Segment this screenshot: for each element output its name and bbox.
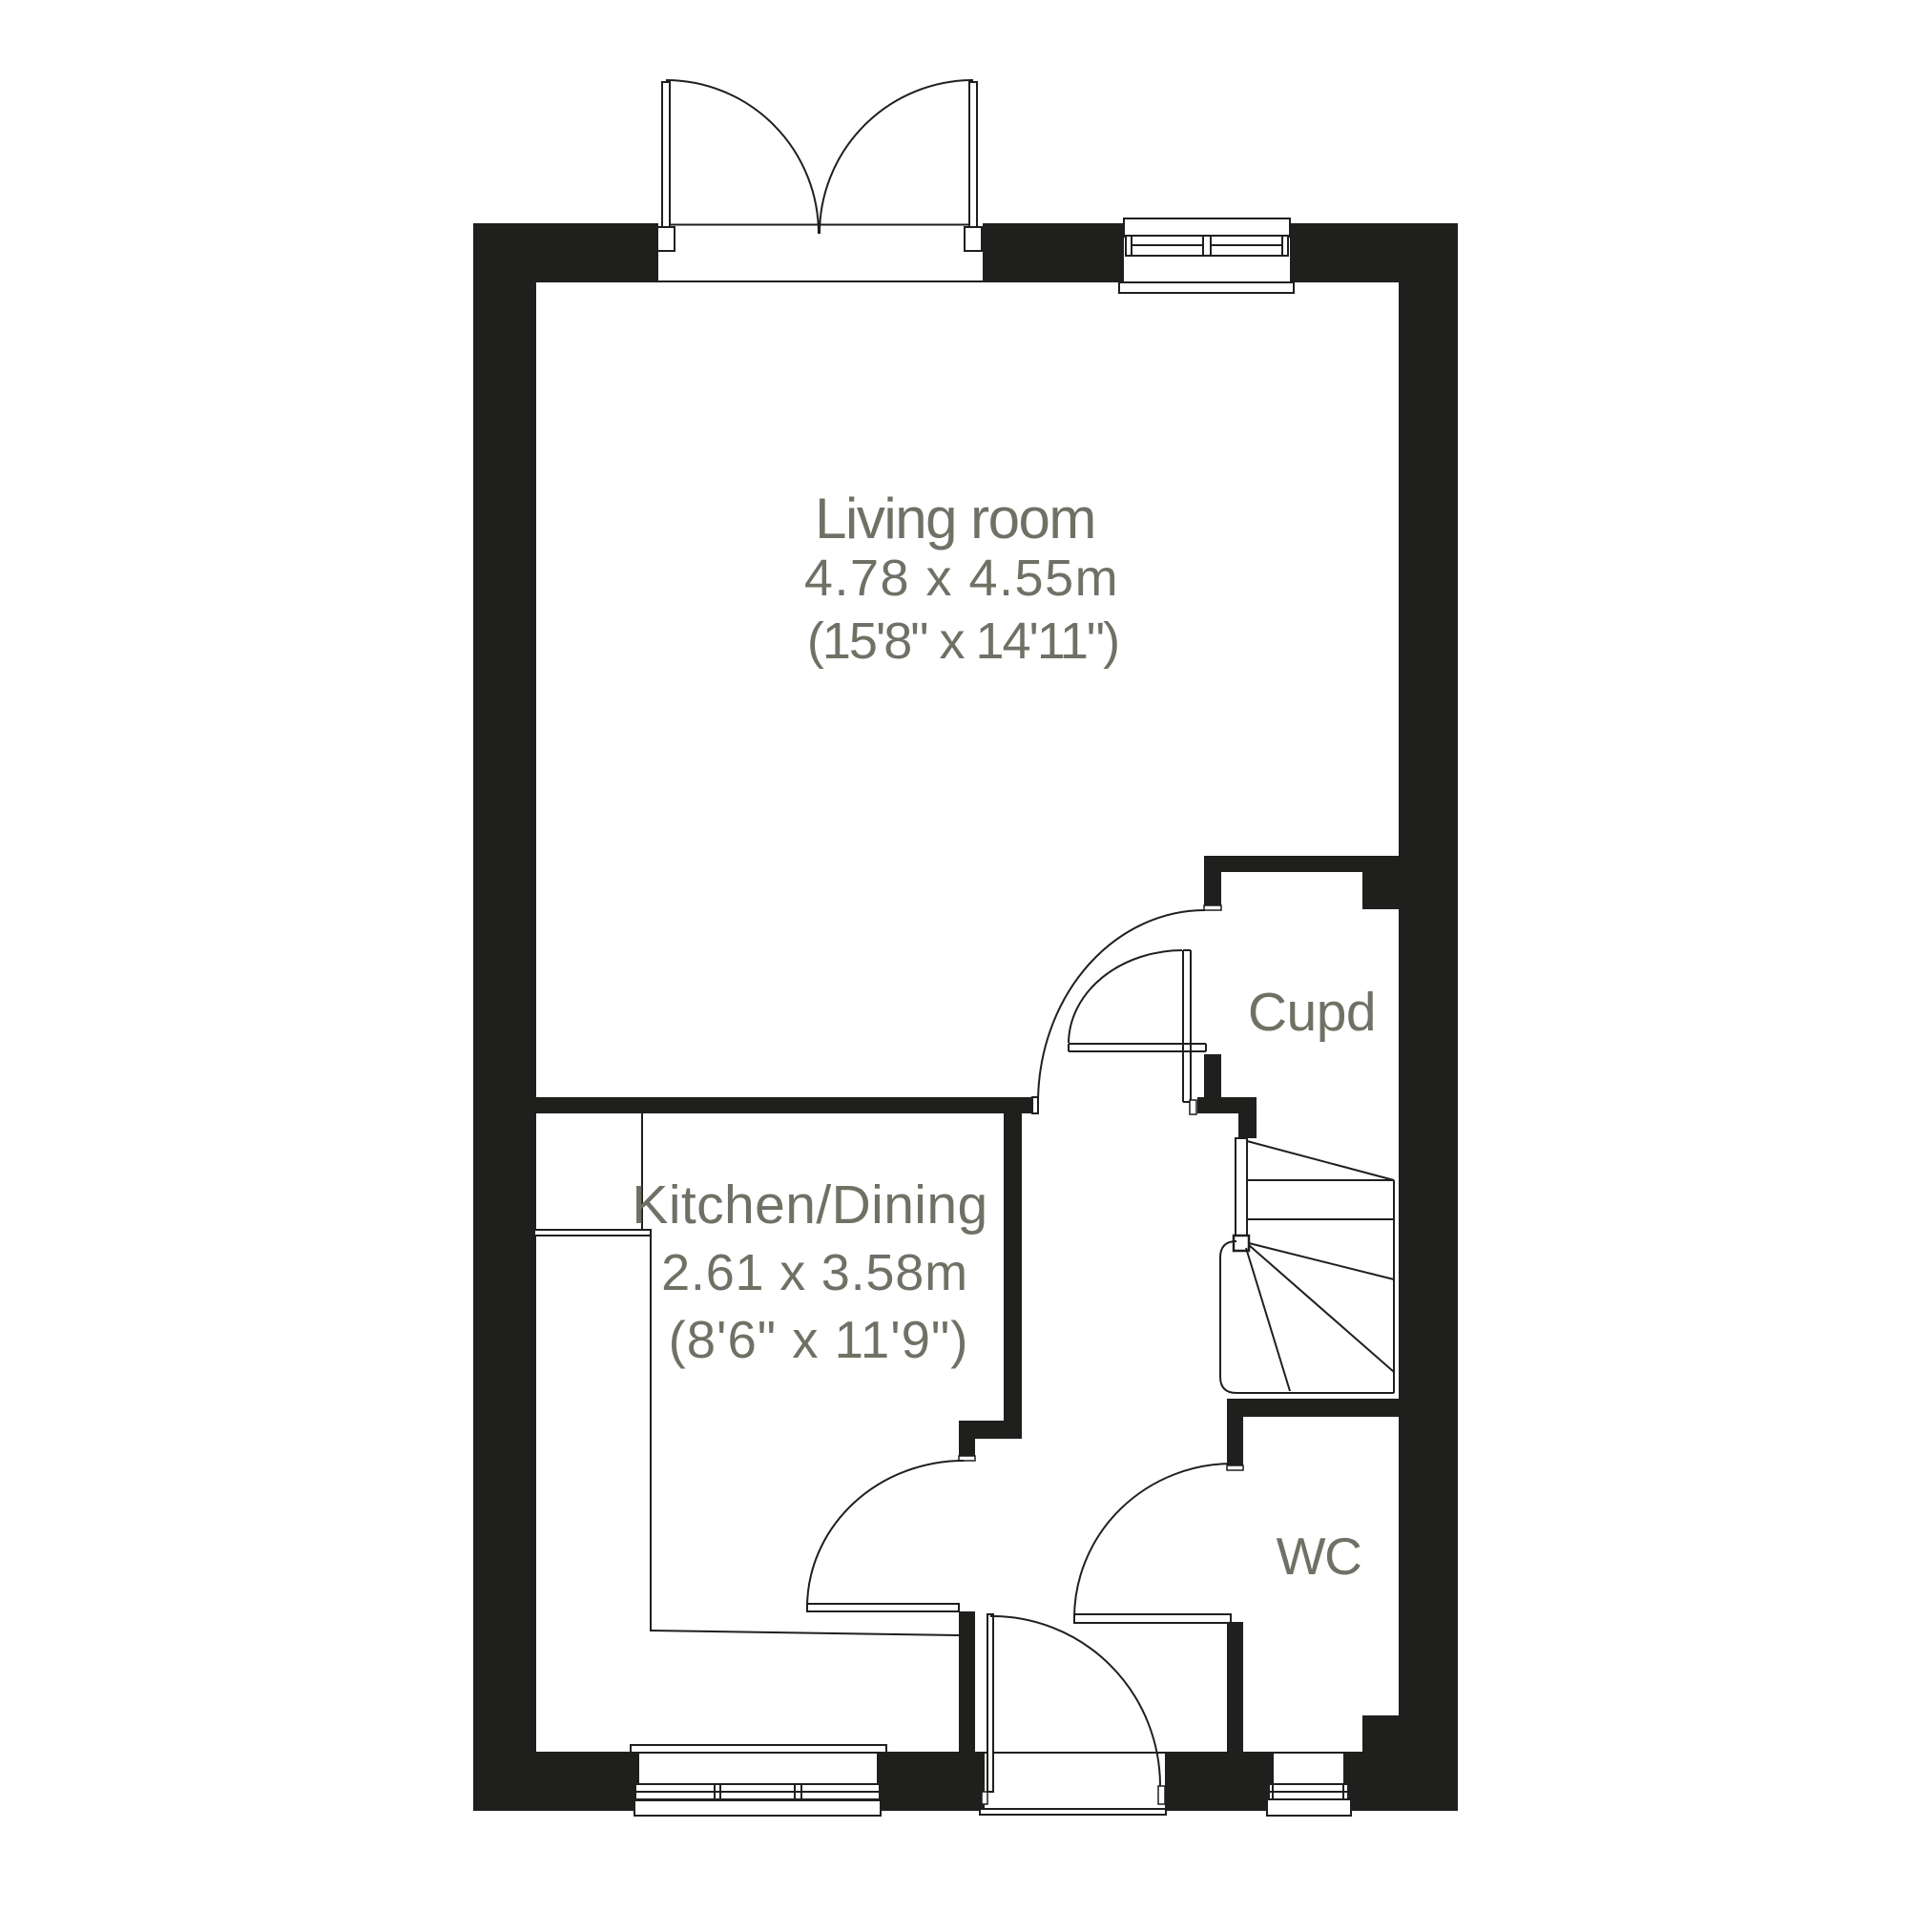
- svg-text:Kitchen/Dining: Kitchen/Dining: [632, 1174, 987, 1236]
- svg-text:Living room: Living room: [815, 487, 1095, 551]
- svg-text:(15'8" x 14'11"): (15'8" x 14'11"): [807, 613, 1118, 670]
- svg-text:Cupd: Cupd: [1248, 982, 1376, 1043]
- svg-text:4.78 x 4.55m: 4.78 x 4.55m: [804, 550, 1119, 607]
- svg-text:(8'6" x 11'9"): (8'6" x 11'9"): [669, 1311, 969, 1369]
- svg-text:2.61 x 3.58m: 2.61 x 3.58m: [661, 1244, 968, 1301]
- svg-text:WC: WC: [1277, 1527, 1361, 1586]
